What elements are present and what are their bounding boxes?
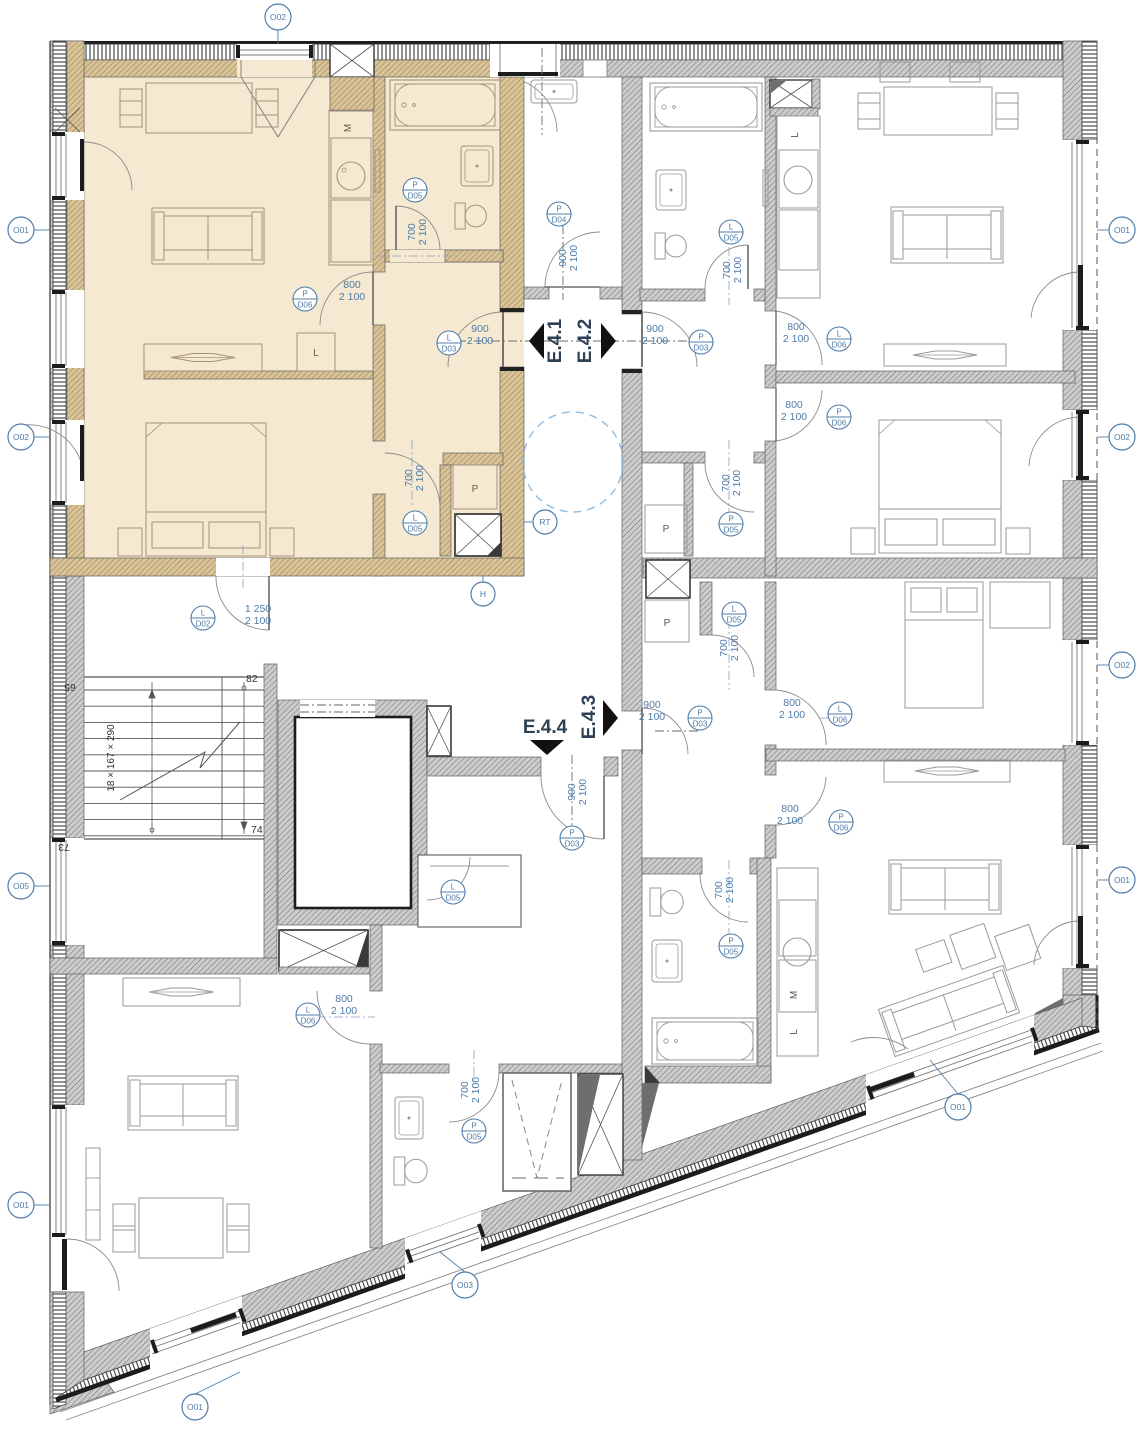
svg-text:D05: D05 (408, 192, 423, 201)
svg-text:D05: D05 (724, 948, 739, 957)
svg-text:2 100: 2 100 (781, 411, 807, 423)
svg-text:2 100: 2 100 (331, 1005, 357, 1017)
svg-text:900: 900 (471, 323, 489, 335)
svg-text:O01: O01 (13, 225, 29, 235)
svg-text:800: 800 (343, 279, 361, 291)
svg-text:D04: D04 (552, 216, 567, 225)
svg-text:O01: O01 (1114, 875, 1130, 885)
svg-text:2 100: 2 100 (777, 815, 803, 827)
svg-text:L: L (790, 132, 801, 138)
svg-text:P: P (664, 618, 671, 629)
svg-text:O02: O02 (13, 432, 29, 442)
svg-text:L: L (447, 334, 452, 343)
svg-text:D03: D03 (442, 345, 457, 354)
svg-text:D03: D03 (693, 720, 708, 729)
svg-text:P: P (697, 709, 702, 718)
svg-text:D03: D03 (565, 840, 580, 849)
svg-text:E.4.4: E.4.4 (523, 717, 568, 738)
svg-text:2 100: 2 100 (245, 615, 271, 627)
svg-text:L: L (201, 609, 206, 618)
svg-text:D03: D03 (694, 344, 709, 353)
svg-text:P: P (728, 515, 733, 524)
svg-text:D05: D05 (724, 234, 739, 243)
svg-text:800: 800 (787, 321, 805, 333)
svg-text:P: P (663, 524, 670, 535)
svg-text:2 100: 2 100 (417, 219, 429, 245)
svg-text:2 100: 2 100 (470, 1077, 482, 1103)
svg-text:L: L (837, 330, 842, 339)
svg-text:2 100: 2 100 (467, 335, 493, 347)
svg-text:900: 900 (646, 323, 664, 335)
svg-text:P: P (698, 333, 703, 342)
svg-text:74: 74 (251, 824, 263, 836)
svg-text:D05: D05 (408, 525, 423, 534)
svg-text:E.4.2: E.4.2 (575, 319, 596, 363)
svg-text:O01: O01 (13, 1200, 29, 1210)
svg-text:800: 800 (335, 993, 353, 1005)
svg-text:O03: O03 (457, 1280, 473, 1290)
svg-text:M: M (343, 124, 354, 132)
svg-text:M: M (789, 991, 800, 999)
svg-text:L: L (838, 705, 843, 714)
svg-text:D06: D06 (834, 824, 849, 833)
svg-text:2 100: 2 100 (577, 779, 589, 805)
svg-text:L: L (732, 605, 737, 614)
svg-text:900: 900 (643, 699, 661, 711)
svg-text:O05: O05 (13, 881, 29, 891)
svg-text:18 × 167 × 290: 18 × 167 × 290 (106, 724, 117, 792)
svg-text:73: 73 (58, 841, 70, 853)
svg-text:2 100: 2 100 (783, 333, 809, 345)
svg-text:RT: RT (539, 517, 550, 527)
svg-text:P: P (569, 829, 574, 838)
svg-text:800: 800 (781, 803, 799, 815)
svg-text:800: 800 (783, 697, 801, 709)
svg-text:P: P (836, 408, 841, 417)
svg-text:2 100: 2 100 (642, 335, 668, 347)
svg-text:P: P (412, 181, 417, 190)
svg-text:L: L (789, 1029, 800, 1035)
svg-text:D05: D05 (727, 616, 742, 625)
svg-text:H: H (480, 589, 486, 599)
svg-text:D06: D06 (298, 301, 313, 310)
svg-text:1 250: 1 250 (245, 603, 271, 615)
svg-text:2 100: 2 100 (568, 245, 580, 271)
svg-text:E.4.1: E.4.1 (545, 318, 566, 363)
svg-text:O01: O01 (950, 1102, 966, 1112)
svg-text:P: P (302, 290, 307, 299)
svg-text:2 100: 2 100 (732, 257, 744, 283)
svg-text:L: L (451, 883, 456, 892)
svg-text:O01: O01 (1114, 225, 1130, 235)
svg-text:P: P (728, 937, 733, 946)
svg-text:O01: O01 (187, 1402, 203, 1412)
svg-text:D02: D02 (196, 620, 211, 629)
svg-text:D06: D06 (833, 716, 848, 725)
svg-text:E.4.3: E.4.3 (579, 695, 600, 739)
svg-text:2 100: 2 100 (729, 635, 741, 661)
svg-text:D06: D06 (301, 1017, 316, 1026)
svg-text:2 100: 2 100 (731, 470, 743, 496)
svg-text:O02: O02 (270, 12, 286, 22)
svg-text:L: L (729, 223, 734, 232)
svg-text:82: 82 (246, 673, 258, 685)
svg-text:O02: O02 (1114, 660, 1130, 670)
svg-text:P: P (472, 484, 479, 495)
svg-text:L: L (413, 514, 418, 523)
svg-text:D05: D05 (467, 1133, 482, 1142)
svg-text:P: P (838, 813, 843, 822)
svg-text:L: L (306, 1006, 311, 1015)
svg-text:2 100: 2 100 (639, 711, 665, 723)
svg-text:D05: D05 (724, 526, 739, 535)
svg-text:P: P (471, 1122, 476, 1131)
svg-text:2 100: 2 100 (414, 465, 426, 491)
svg-text:2 100: 2 100 (724, 877, 736, 903)
svg-text:2 100: 2 100 (779, 709, 805, 721)
svg-text:O02: O02 (1114, 432, 1130, 442)
svg-text:D06: D06 (832, 341, 847, 350)
svg-text:D06: D06 (832, 419, 847, 428)
svg-text:2 100: 2 100 (339, 291, 365, 303)
svg-text:D05: D05 (446, 894, 461, 903)
svg-text:65: 65 (64, 681, 76, 693)
svg-text:800: 800 (785, 399, 803, 411)
svg-text:P: P (556, 205, 561, 214)
svg-text:L: L (313, 348, 319, 359)
